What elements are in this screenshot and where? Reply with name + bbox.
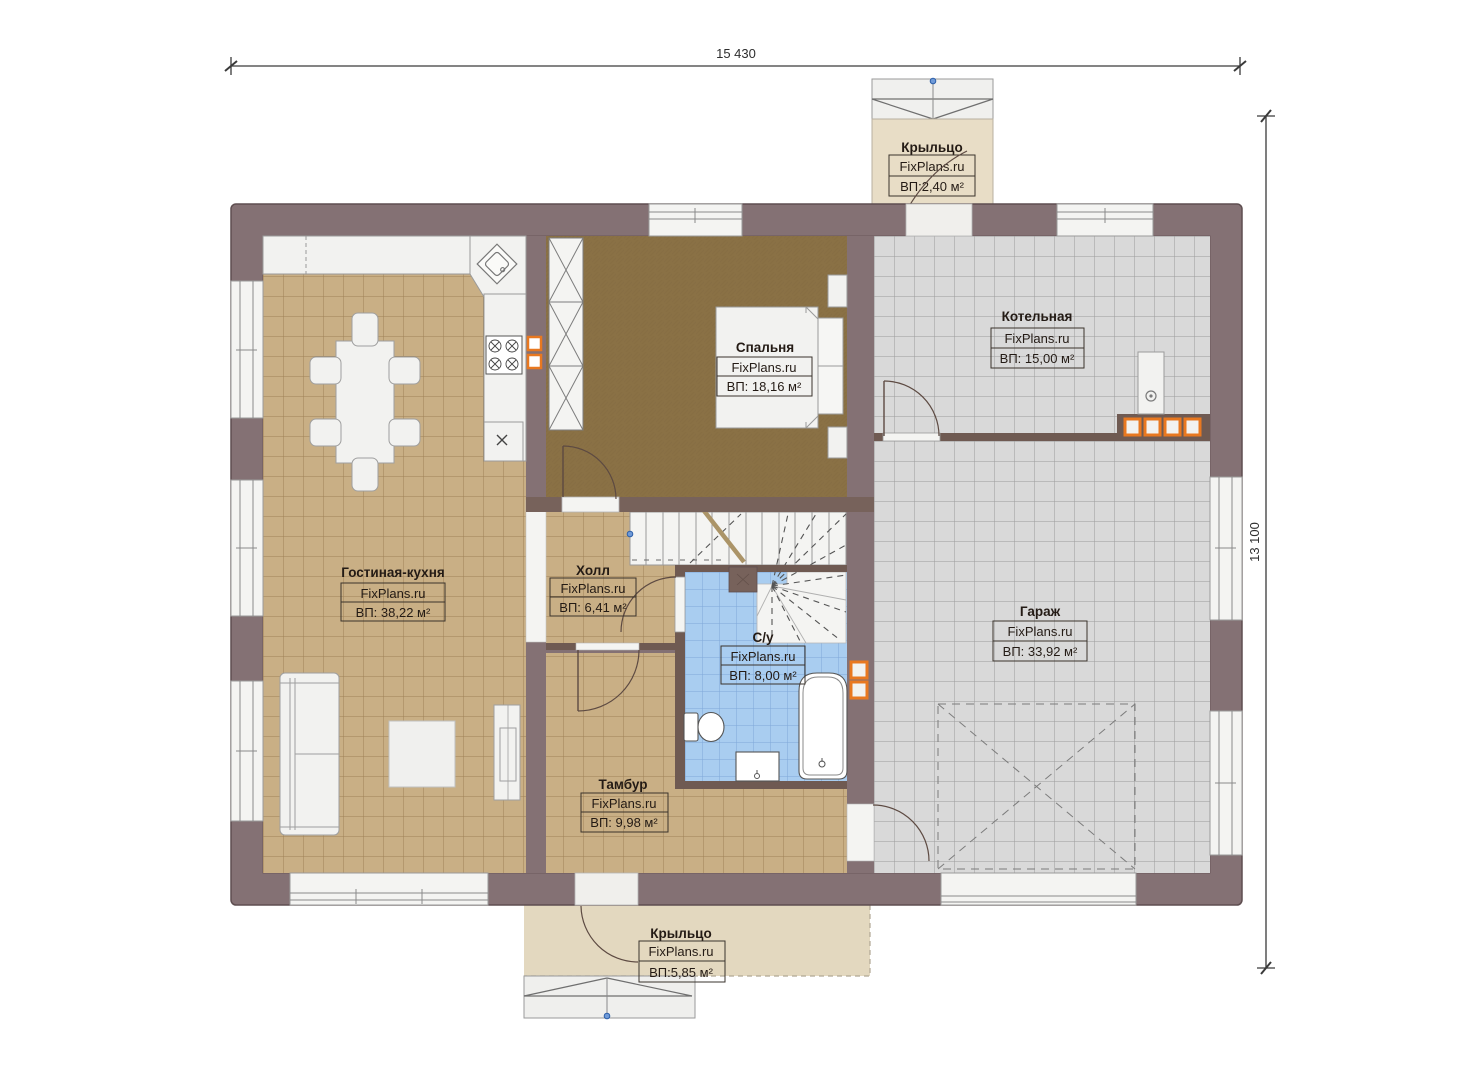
svg-text:ВП: 33,92 м²: ВП: 33,92 м² <box>1003 644 1078 659</box>
svg-text:Крыльцо: Крыльцо <box>901 140 962 155</box>
svg-text:ВП:5,85 м²: ВП:5,85 м² <box>649 965 713 980</box>
svg-text:Холл: Холл <box>576 563 610 578</box>
svg-text:ВП: 18,16 м²: ВП: 18,16 м² <box>727 379 802 394</box>
svg-text:Крыльцо: Крыльцо <box>650 926 711 941</box>
svg-text:FixPlans.ru: FixPlans.ru <box>591 796 656 811</box>
svg-text:Гостиная-кухня: Гостиная-кухня <box>341 565 444 580</box>
svg-text:FixPlans.ru: FixPlans.ru <box>648 944 713 959</box>
svg-text:FixPlans.ru: FixPlans.ru <box>1007 624 1072 639</box>
svg-text:ВП: 6,41 м²: ВП: 6,41 м² <box>559 600 627 615</box>
svg-text:13 100: 13 100 <box>1247 522 1262 562</box>
svg-text:FixPlans.ru: FixPlans.ru <box>560 581 625 596</box>
svg-text:Котельная: Котельная <box>1002 309 1073 324</box>
svg-text:Спальня: Спальня <box>736 340 794 355</box>
svg-text:Тамбур: Тамбур <box>599 777 648 792</box>
svg-text:FixPlans.ru: FixPlans.ru <box>899 159 964 174</box>
svg-text:FixPlans.ru: FixPlans.ru <box>730 649 795 664</box>
svg-text:FixPlans.ru: FixPlans.ru <box>1004 331 1069 346</box>
svg-text:ВП: 38,22 м²: ВП: 38,22 м² <box>356 605 431 620</box>
svg-text:Гараж: Гараж <box>1020 604 1061 619</box>
svg-text:FixPlans.ru: FixPlans.ru <box>731 360 796 375</box>
svg-text:ВП: 15,00 м²: ВП: 15,00 м² <box>1000 351 1075 366</box>
svg-text:15 430: 15 430 <box>716 46 756 61</box>
svg-text:ВП: 9,98 м²: ВП: 9,98 м² <box>590 815 658 830</box>
svg-text:ВП:2,40 м²: ВП:2,40 м² <box>900 179 964 194</box>
svg-text:ВП: 8,00 м²: ВП: 8,00 м² <box>729 668 797 683</box>
svg-text:С/у: С/у <box>752 630 774 645</box>
svg-text:FixPlans.ru: FixPlans.ru <box>360 586 425 601</box>
